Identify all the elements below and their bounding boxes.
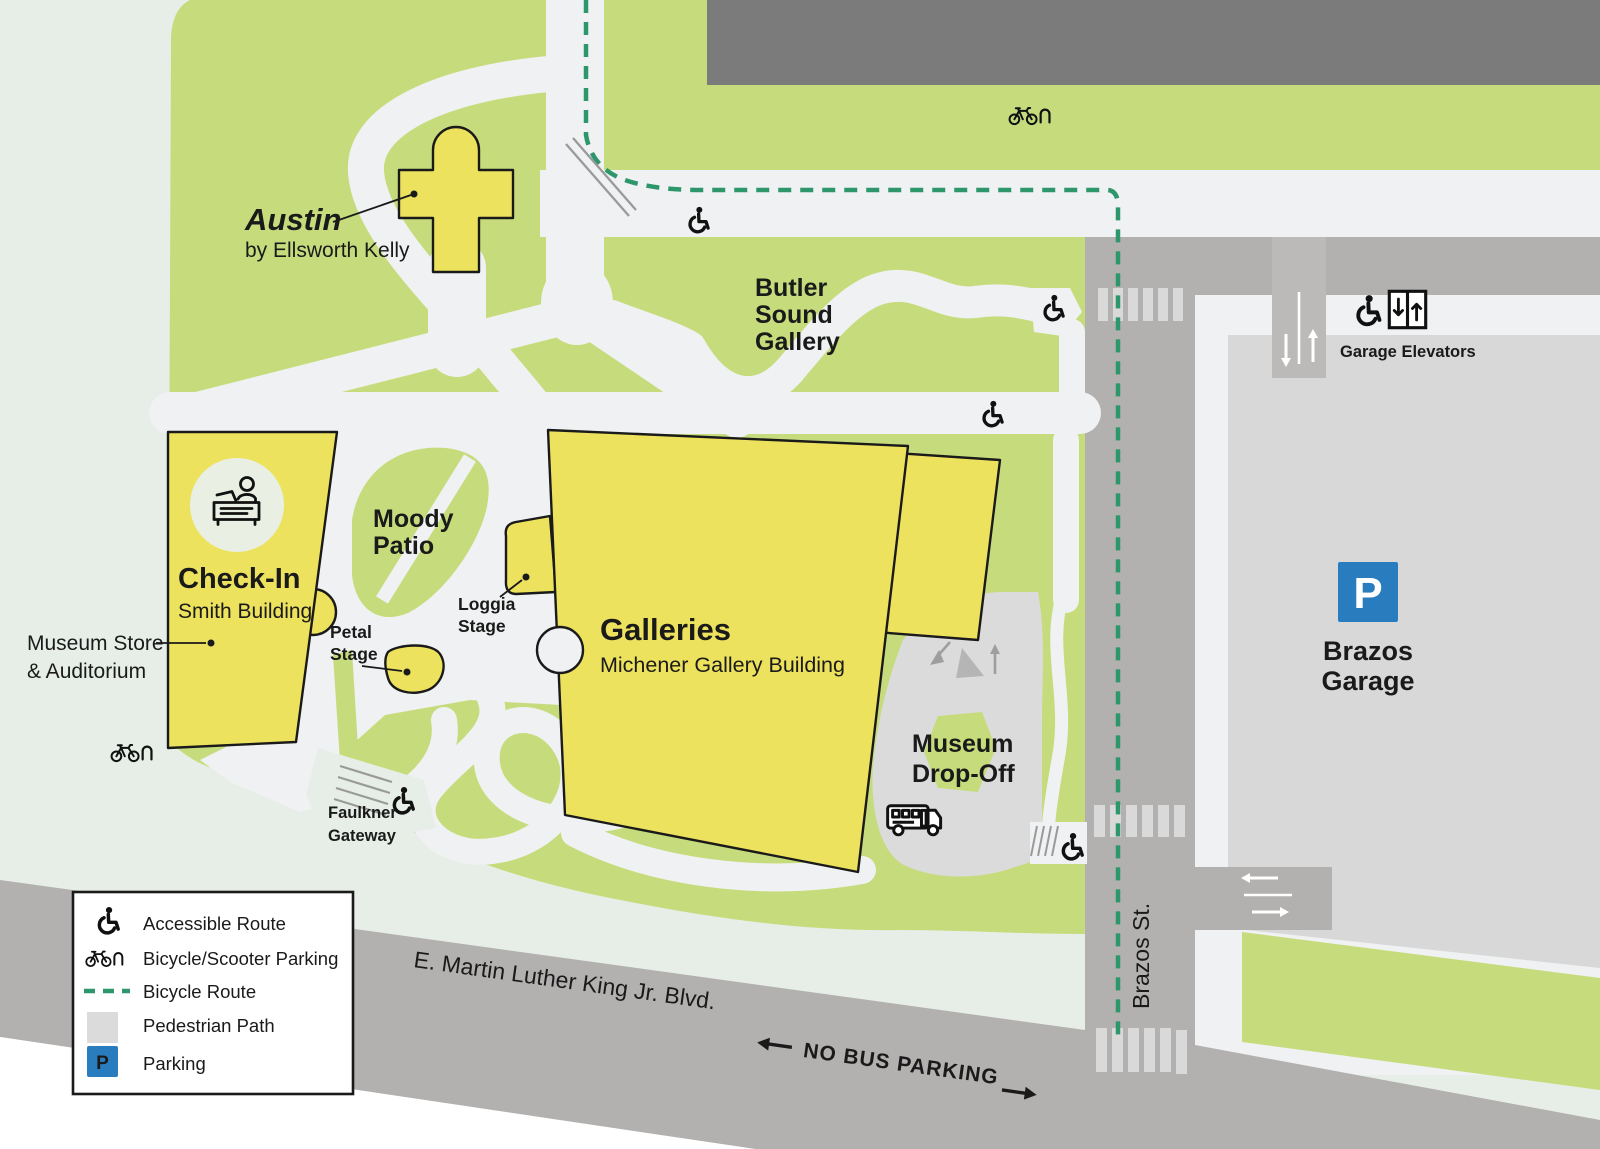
garage-ramp xyxy=(1272,237,1326,378)
galleries-entrance-notch xyxy=(537,627,583,673)
drop-off-label-2: Drop-Off xyxy=(912,760,1015,788)
neighboring-building xyxy=(707,0,1600,85)
legend-parking-symbol: P xyxy=(96,1053,109,1074)
petal-label-1: Petal xyxy=(330,622,372,642)
lawn-strip-top-right xyxy=(1085,85,1600,170)
legend-label-pedestrian: Pedestrian Path xyxy=(143,1015,275,1036)
galleries-building[interactable] xyxy=(548,430,908,872)
brazos-st-label: Brazos St. xyxy=(1128,903,1154,1009)
petal-label-2: Stage xyxy=(330,644,378,664)
butler-label-1: Butler xyxy=(755,274,828,302)
austin-sublabel: by Ellsworth Kelly xyxy=(245,239,410,262)
legend-label-parking: Parking xyxy=(143,1053,206,1074)
drop-off-label-1: Museum xyxy=(912,730,1013,758)
michener-label: Michener Gallery Building xyxy=(600,653,845,677)
legend: Accessible Route Bicycle/Scooter Parking… xyxy=(73,892,353,1094)
sidewalk-top xyxy=(540,170,1600,237)
loggia-label-1: Loggia xyxy=(458,594,516,614)
parking-symbol: P xyxy=(1353,569,1382,618)
moody-label-1: Moody xyxy=(373,505,454,533)
moody-label-2: Patio xyxy=(373,532,434,560)
legend-label-bike-parking: Bicycle/Scooter Parking xyxy=(143,948,338,969)
brazos-garage-label-1: Brazos xyxy=(1323,636,1413,666)
museum-store-label-1: Museum Store xyxy=(27,632,164,655)
legend-label-accessible: Accessible Route xyxy=(143,913,286,934)
galleries-label: Galleries xyxy=(600,612,731,647)
butler-label-2: Sound xyxy=(755,301,833,329)
check-in-desk-icon xyxy=(190,458,284,552)
path-node-plaza xyxy=(541,261,613,345)
loggia-label-2: Stage xyxy=(458,616,506,636)
gray-square-icon xyxy=(87,1012,118,1043)
smith-building-label: Smith Building xyxy=(178,600,312,623)
butler-label-3: Gallery xyxy=(755,328,840,356)
garage-elevators-label: Garage Elevators xyxy=(1340,343,1476,361)
brazos-street xyxy=(1085,237,1195,1149)
faulkner-label-2: Gateway xyxy=(328,827,397,845)
brazos-garage-label-2: Garage xyxy=(1321,666,1414,696)
check-in-label: Check-In xyxy=(178,563,300,595)
museum-store-label-2: & Auditorium xyxy=(27,660,146,683)
faulkner-label-1: Faulkner xyxy=(328,804,397,822)
elevator-icon xyxy=(1389,291,1425,327)
campus-map: Austin by Ellsworth Kelly Butler Sound G… xyxy=(0,0,1600,1149)
loggia-stage-building[interactable] xyxy=(506,516,556,594)
garage-entrance-road xyxy=(1195,867,1332,930)
petal-stage-building[interactable] xyxy=(385,646,443,693)
austin-label: Austin xyxy=(244,202,341,237)
legend-label-bike-route: Bicycle Route xyxy=(143,981,256,1002)
